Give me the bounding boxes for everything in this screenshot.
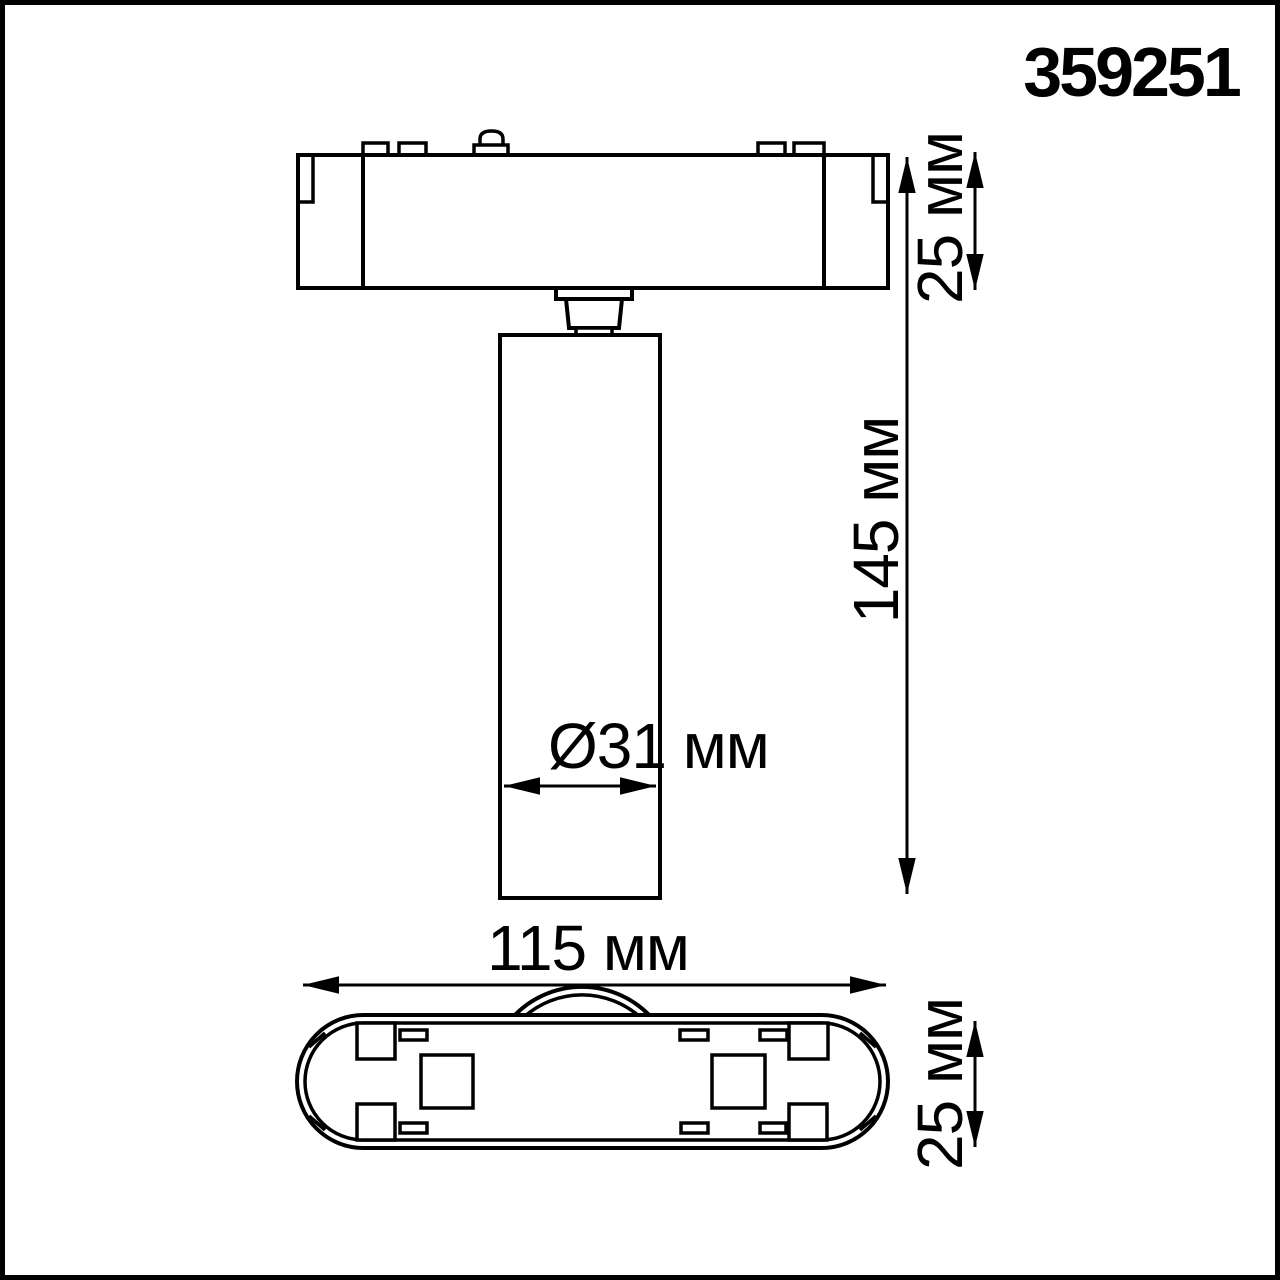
dim-label-adapter-height: 25 мм <box>904 132 976 304</box>
base-tab <box>400 1123 427 1133</box>
drawing-canvas: 359251 <box>0 0 1280 1280</box>
dim-label-diameter: Ø31 мм <box>548 710 769 782</box>
base-tab <box>680 1030 708 1040</box>
technical-drawing: 359251 <box>0 0 1280 1280</box>
dim-label-total-height: 145 мм <box>840 417 912 624</box>
product-number: 359251 <box>1023 33 1240 111</box>
base-block <box>357 1104 395 1140</box>
adapter-body <box>298 155 888 288</box>
base-magnet-left <box>421 1055 473 1108</box>
base-block <box>789 1023 828 1059</box>
lamp-cylinder <box>500 335 660 898</box>
stem-neck <box>566 299 622 328</box>
base-tab <box>760 1030 787 1040</box>
dim-label-base-depth: 25 мм <box>904 998 976 1170</box>
side-view <box>298 131 888 898</box>
bottom-view <box>297 987 888 1148</box>
base-block <box>357 1023 395 1059</box>
base-magnet-right <box>712 1055 765 1108</box>
base-block <box>789 1104 827 1140</box>
base-tab <box>760 1123 786 1133</box>
base-tab <box>400 1030 427 1040</box>
dim-label-base-width: 115 мм <box>487 912 689 984</box>
base-tab <box>681 1123 708 1133</box>
base-bump-outer <box>513 987 651 1017</box>
